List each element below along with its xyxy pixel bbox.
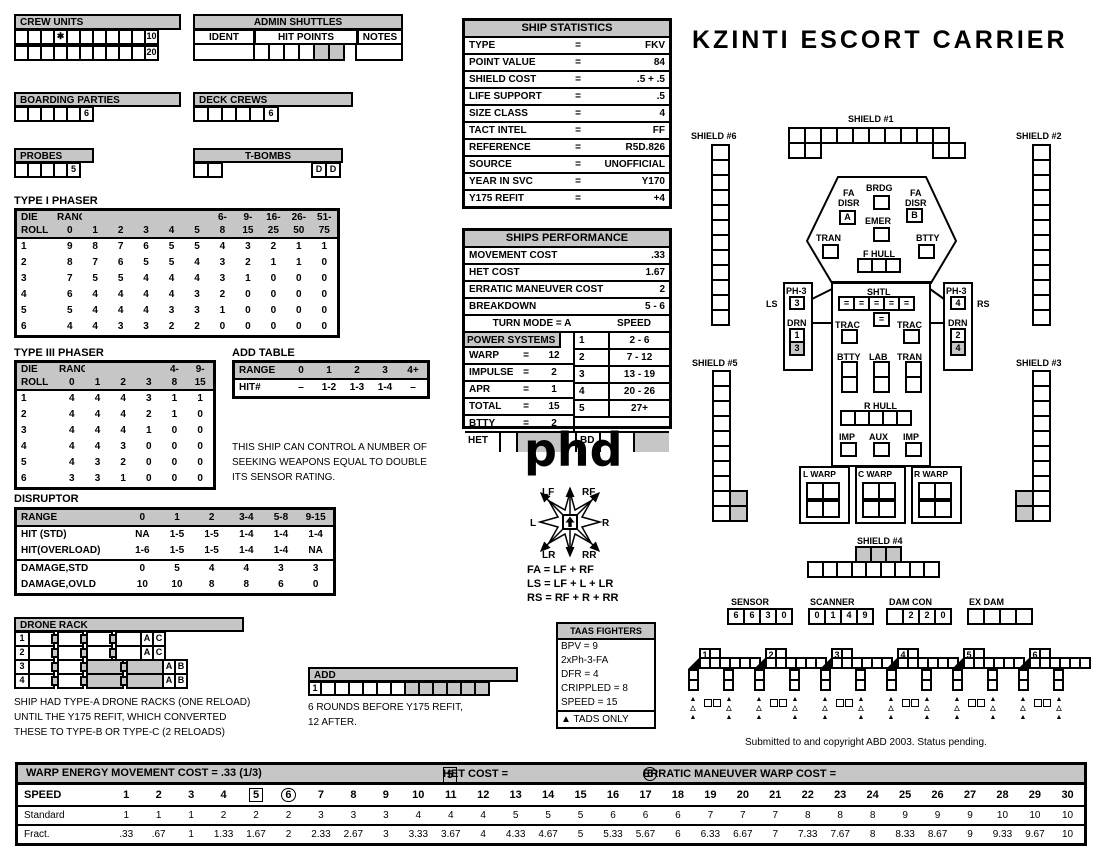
box-cell: 5 bbox=[66, 162, 81, 178]
aux-cell[interactable] bbox=[873, 442, 890, 457]
rose-label-lf: LF bbox=[542, 487, 554, 498]
ship-statistics-panel: SHIP STATISTICS TYPE=FKVPOINT VALUE=84SH… bbox=[462, 18, 672, 209]
box-cell bbox=[1018, 679, 1029, 691]
emer-label: EMER bbox=[865, 216, 891, 226]
box-cell bbox=[886, 679, 897, 691]
l-warp-label: L WARP bbox=[803, 469, 836, 479]
fighter-arrow-icons: ▲△▲ bbox=[856, 695, 866, 722]
box-cell bbox=[754, 679, 765, 691]
erratic-value: 2 bbox=[659, 282, 665, 297]
box-cell bbox=[841, 376, 858, 393]
het-cost-header-value: 5 bbox=[443, 767, 457, 784]
fighter-mini-box bbox=[1043, 699, 1051, 707]
disruptor-table: RANGE0123-45-89-15HIT (STD)NA1-51-51-41-… bbox=[14, 507, 336, 596]
fighter-wing-icon bbox=[1018, 658, 1029, 669]
box-cell: 4 bbox=[950, 341, 966, 356]
type1-phaser-table: DIERANGE6-9-16-26-51-ROLL012345815255075… bbox=[14, 208, 340, 338]
tads-triangle-icon: ▲ bbox=[561, 714, 571, 725]
shield1-label: SHIELD #1 bbox=[848, 114, 894, 124]
fighter-wing-icon bbox=[886, 658, 897, 669]
btty-mid-column[interactable] bbox=[841, 361, 858, 391]
box-cell: A bbox=[839, 210, 856, 225]
fighter-icon[interactable]: 3▲△▲▲△▲ bbox=[820, 648, 866, 732]
fighter-mini-box bbox=[836, 699, 844, 707]
trac-left-cell[interactable] bbox=[841, 329, 858, 344]
taas-title: TAAS FIGHTERS bbox=[558, 624, 654, 640]
add-strip-note: 6 ROUNDS BEFORE Y175 REFIT, 12 AFTER. bbox=[308, 700, 463, 730]
disr-b-box[interactable]: B bbox=[906, 208, 921, 223]
probes-header: PROBES bbox=[14, 148, 94, 163]
admin-shuttles-header: ADMIN SHUTTLES bbox=[193, 14, 403, 30]
box-cell bbox=[711, 309, 730, 326]
sensor-label: SENSOR bbox=[731, 597, 769, 607]
add-table-title: ADD TABLE bbox=[232, 347, 295, 359]
ships-performance-panel: SHIPS PERFORMANCE MOVEMENT COST.33 HET C… bbox=[462, 228, 672, 429]
fa-left-label: FA bbox=[843, 188, 855, 198]
admin-notes-cell[interactable] bbox=[355, 43, 403, 61]
warp-energy-cost-label: WARP ENERGY MOVEMENT COST = .33 (1/3) bbox=[26, 766, 262, 781]
box-cell bbox=[885, 258, 901, 273]
box-cell: 4 bbox=[950, 296, 966, 310]
box-cell: 6 bbox=[79, 106, 94, 122]
box-cell bbox=[952, 679, 963, 691]
fighter-icon[interactable]: 6▲△▲▲△▲ bbox=[1018, 648, 1064, 732]
drone-rack-rows[interactable]: 1AC2AC3AB4AB bbox=[14, 631, 186, 687]
deck-crews-row[interactable]: 6 bbox=[193, 106, 277, 122]
box-cell bbox=[1015, 505, 1034, 522]
tads-only-label: TADS ONLY bbox=[574, 714, 629, 725]
drone-rack-note: SHIP HAD TYPE-A DRONE RACKS (ONE RELOAD)… bbox=[14, 695, 250, 740]
fighter-mini-box bbox=[1034, 699, 1042, 707]
aux-label: AUX bbox=[869, 432, 888, 442]
emer-box[interactable] bbox=[873, 227, 888, 242]
drn-left-boxes[interactable]: 13 bbox=[789, 328, 805, 354]
disr-left-label: DISR bbox=[838, 198, 860, 208]
shield3-label: SHIELD #3 bbox=[1016, 358, 1062, 368]
rose-label-lr: LR bbox=[542, 550, 556, 561]
admin-ident-cell[interactable] bbox=[193, 43, 255, 61]
seeking-weapons-note: THIS SHIP CAN CONTROL A NUMBER OF SEEKIN… bbox=[232, 440, 427, 485]
box-cell bbox=[878, 500, 896, 518]
ph3-right-box[interactable]: 4 bbox=[950, 296, 964, 310]
speed-rows-col: 12 - 627 - 12313 - 19420 - 26527+ bbox=[575, 333, 669, 431]
fighter-wing-icon bbox=[820, 658, 831, 669]
het-box[interactable] bbox=[501, 433, 518, 452]
fighter-arrow-icons: ▲△▲ bbox=[688, 695, 698, 722]
ph3-right-label: PH-3 bbox=[946, 286, 967, 296]
dam-con-track[interactable]: 220 bbox=[886, 608, 950, 625]
taas-line-crippled: CRIPPLED = 8 bbox=[558, 682, 654, 696]
fighter-mini-box bbox=[713, 699, 721, 707]
type1-phaser-title: TYPE I PHASER bbox=[14, 195, 98, 207]
shtl-center-box[interactable]: = bbox=[873, 312, 888, 327]
ex-dam-label: EX DAM bbox=[969, 597, 1004, 607]
disr-right-label: DISR bbox=[905, 198, 927, 208]
ls-label: LS bbox=[766, 299, 778, 309]
copyright-note: Submitted to and copyright ABD 2003. Sta… bbox=[745, 737, 987, 748]
bd-gray-box bbox=[635, 433, 669, 452]
box-cell: 9 bbox=[856, 608, 874, 625]
btty-fwd-label: BTTY bbox=[916, 233, 940, 243]
rose-label-rr: RR bbox=[582, 550, 597, 561]
drone-rack-row[interactable]: 4AB bbox=[14, 673, 186, 689]
erratic-cost-row: ERRATIC MANEUVER COST2 bbox=[465, 282, 669, 299]
box-cell bbox=[729, 505, 748, 522]
r-warp-grid[interactable] bbox=[918, 482, 954, 518]
rose-label-rf: RF bbox=[582, 487, 595, 498]
box-cell: 3 bbox=[789, 296, 805, 310]
shield1-bottom-left[interactable] bbox=[788, 142, 820, 159]
fighter-row[interactable]: 1▲△▲▲△▲2▲△▲▲△▲3▲△▲▲△▲4▲△▲▲△▲5▲△▲▲△▲6▲△▲▲… bbox=[688, 648, 1084, 732]
fighter-wing-icon bbox=[952, 658, 963, 669]
speed-col-header: SPEED bbox=[599, 316, 669, 331]
box-cell bbox=[896, 410, 912, 426]
r-hull-boxes[interactable] bbox=[840, 410, 910, 426]
movement-cost-row: MOVEMENT COST.33 bbox=[465, 248, 669, 265]
imp-right-box[interactable] bbox=[905, 442, 920, 457]
box-cell: 20 bbox=[144, 45, 159, 61]
r-warp-label: R WARP bbox=[914, 469, 948, 479]
shtl-row-boxes[interactable]: ===== bbox=[838, 296, 913, 311]
ex-dam-track[interactable] bbox=[967, 608, 1031, 625]
fighter-arrow-icons: ▲△▲ bbox=[754, 695, 764, 722]
box-cell: = bbox=[898, 296, 915, 311]
dam-con-label: DAM CON bbox=[889, 597, 932, 607]
box-cell: = bbox=[873, 312, 890, 327]
shield6-label: SHIELD #6 bbox=[691, 131, 737, 141]
trac-right-cell[interactable] bbox=[903, 329, 920, 344]
box-cell bbox=[126, 673, 164, 689]
ships-performance-title: SHIPS PERFORMANCE bbox=[465, 231, 669, 248]
turn-mode-value: TURN MODE = A bbox=[465, 316, 599, 331]
fighter-mini-box bbox=[845, 699, 853, 707]
fighter-icon[interactable]: 5▲△▲▲△▲ bbox=[952, 648, 998, 732]
fighter-mini-box bbox=[704, 699, 712, 707]
sensor-track[interactable]: 6630 bbox=[727, 608, 791, 625]
taas-fighters-panel: TAAS FIGHTERS BPV = 9 2xPh-3-FA DFR = 4 … bbox=[556, 622, 656, 729]
power-systems-header: POWER SYSTEMS bbox=[465, 333, 561, 348]
shield5-gray-pair bbox=[729, 490, 748, 520]
fighter-arrow-icons: ▲△▲ bbox=[724, 695, 734, 722]
box-cell bbox=[1015, 608, 1033, 625]
box-cell bbox=[1079, 657, 1091, 669]
emer-cell[interactable] bbox=[873, 227, 890, 242]
tran-fwd-label: TRAN bbox=[816, 233, 841, 243]
taas-line-bpv: BPV = 9 bbox=[558, 640, 654, 654]
trac-left-box[interactable] bbox=[841, 329, 856, 344]
boarding-parties-row[interactable]: 6 bbox=[14, 106, 92, 122]
box-cell: 10 bbox=[144, 29, 159, 45]
add-strip-num: 1 bbox=[308, 681, 320, 696]
box-cell bbox=[804, 142, 822, 159]
taas-line-weapons: 2xPh-3-FA bbox=[558, 654, 654, 668]
box-cell bbox=[820, 679, 831, 691]
admin-hit-cells[interactable] bbox=[253, 43, 343, 61]
drn-left-label: DRN bbox=[787, 318, 807, 328]
add-table: RANGE01234+HIT#–1-21-31-4– bbox=[232, 360, 430, 399]
taas-line-speed: SPEED = 15 bbox=[558, 696, 654, 710]
fighter-icon[interactable]: 4▲△▲▲△▲ bbox=[886, 648, 932, 732]
box-cell bbox=[474, 681, 490, 696]
drn-right-label: DRN bbox=[948, 318, 968, 328]
shield2-column[interactable] bbox=[1032, 144, 1051, 324]
movement-cost-label: MOVEMENT COST bbox=[469, 248, 557, 263]
imp-left-cell[interactable] bbox=[840, 442, 857, 457]
c-warp-label: C WARP bbox=[858, 469, 892, 479]
movement-cost-value: .33 bbox=[651, 248, 665, 263]
speed-chart-header: WARP ENERGY MOVEMENT COST = .33 (1/3) HE… bbox=[18, 765, 1084, 785]
box-cell: 6 bbox=[263, 106, 279, 122]
box-cell bbox=[923, 561, 940, 578]
erratic-label: ERRATIC MANEUVER COST bbox=[469, 282, 603, 297]
t-bombs-header: T-BOMBS bbox=[193, 148, 343, 163]
box-cell bbox=[1053, 679, 1064, 691]
fighter-mini-box bbox=[968, 699, 976, 707]
box-cell bbox=[921, 679, 932, 691]
box-cell bbox=[878, 482, 896, 500]
fighter-mini-box bbox=[911, 699, 919, 707]
box-cell: 0 bbox=[775, 608, 793, 625]
add-strip-cells[interactable] bbox=[320, 681, 488, 696]
fighter-arrow-icons: ▲△▲ bbox=[952, 695, 962, 722]
ph3-left-box[interactable]: 3 bbox=[789, 296, 803, 310]
box-cell: 3 bbox=[789, 341, 805, 356]
imp-left-box[interactable] bbox=[840, 442, 855, 457]
fighter-icon[interactable]: 1▲△▲▲△▲ bbox=[688, 648, 734, 732]
fighter-mini-box bbox=[902, 699, 910, 707]
box-cell bbox=[987, 679, 998, 691]
box-cell bbox=[822, 500, 840, 518]
box-cell bbox=[1032, 505, 1051, 522]
shield2-label: SHIELD #2 bbox=[1016, 131, 1062, 141]
aux-box[interactable] bbox=[873, 442, 888, 457]
phd-logo: phd bbox=[524, 426, 623, 474]
breakdown-row: BREAKDOWN5 - 6 bbox=[465, 299, 669, 316]
tran-fwd-box[interactable] bbox=[822, 244, 837, 259]
box-cell bbox=[1032, 309, 1051, 326]
box-cell: D bbox=[325, 162, 341, 178]
imp-right-label: IMP bbox=[903, 432, 919, 442]
fighter-arrow-icons: ▲△▲ bbox=[922, 695, 932, 722]
box-cell bbox=[789, 679, 800, 691]
shield1-bottom-right[interactable] bbox=[932, 142, 964, 159]
box-cell bbox=[822, 482, 840, 500]
crew-units-row-1: ✱10 bbox=[14, 29, 157, 45]
brdg-label: BRDG bbox=[866, 183, 893, 193]
c-warp-grid[interactable] bbox=[862, 482, 898, 518]
breakdown-label: BREAKDOWN bbox=[469, 299, 536, 314]
erratic-header-value: 6 bbox=[643, 767, 657, 781]
shield3-gray-pair bbox=[1015, 490, 1034, 520]
btty-fwd-box[interactable] bbox=[918, 244, 933, 259]
box-cell bbox=[207, 162, 223, 178]
box-cell bbox=[934, 482, 952, 500]
disruptor-title: DISRUPTOR bbox=[14, 493, 79, 505]
breakdown-value: 5 - 6 bbox=[645, 299, 665, 314]
fighter-mini-box bbox=[779, 699, 787, 707]
box-cell bbox=[86, 673, 124, 689]
tran-mid-column[interactable] bbox=[905, 361, 922, 391]
add-strip-header: ADD bbox=[308, 667, 518, 682]
shield3-column[interactable] bbox=[1032, 370, 1051, 520]
box-cell bbox=[688, 679, 699, 691]
btty-fwd-cell[interactable] bbox=[918, 244, 935, 259]
box-cell bbox=[328, 43, 345, 61]
fa-right-label: FA bbox=[910, 188, 922, 198]
box-cell bbox=[855, 679, 866, 691]
crew-units-row-2: 20 bbox=[14, 45, 157, 61]
rose-label-r: R bbox=[602, 518, 610, 529]
brdg-cell[interactable] bbox=[873, 195, 890, 210]
fighter-mini-box bbox=[977, 699, 985, 707]
box-cell bbox=[723, 679, 734, 691]
boarding-parties-header: BOARDING PARTIES bbox=[14, 92, 181, 107]
shield4-bottom-row[interactable] bbox=[807, 561, 938, 578]
box-cell: B bbox=[906, 208, 923, 223]
shield6-column[interactable] bbox=[711, 144, 730, 324]
l-warp-grid[interactable] bbox=[806, 482, 842, 518]
ship-statistics-title: SHIP STATISTICS bbox=[465, 21, 669, 38]
type3-phaser-table: DIERANGE4-9-ROLL012381514443112444210344… bbox=[14, 360, 216, 490]
ssd-sheet: CREW UNITS ✱10 20 ADMIN SHUTTLES IDENT H… bbox=[0, 0, 1100, 850]
fighter-arrow-icons: ▲△▲ bbox=[886, 695, 896, 722]
firing-arc-rose: LF RF L R LR RR bbox=[526, 478, 614, 566]
power-systems-col: POWER SYSTEMS WARP=12IMPULSE=2APR=1TOTAL… bbox=[465, 333, 575, 431]
speed-chart: WARP ENERGY MOVEMENT COST = .33 (1/3) HE… bbox=[15, 762, 1087, 846]
drn-right-boxes[interactable]: 24 bbox=[950, 328, 966, 354]
imp-left-label: IMP bbox=[839, 432, 855, 442]
fighter-wing-icon bbox=[754, 658, 765, 669]
lab-column[interactable] bbox=[873, 361, 890, 391]
tran-fwd-cell[interactable] bbox=[822, 244, 839, 259]
rs-label: RS bbox=[977, 299, 990, 309]
page-title: KZINTI ESCORT CARRIER bbox=[692, 26, 1068, 55]
fighter-wing-icon bbox=[688, 658, 699, 669]
het-cost-row: HET COST1.67 bbox=[465, 265, 669, 282]
taas-line-dfr: DFR = 4 bbox=[558, 668, 654, 682]
box-cell bbox=[873, 376, 890, 393]
shield5-label: SHIELD #5 bbox=[692, 358, 738, 368]
fighter-icon[interactable]: 2▲△▲▲△▲ bbox=[754, 648, 800, 732]
het-cost-value: 1.67 bbox=[646, 265, 665, 280]
t-bombs-d-cells[interactable]: DD bbox=[311, 162, 339, 178]
power-rows-table: WARP=12IMPULSE=2APR=1TOTAL=15BTTY=2 bbox=[465, 348, 573, 431]
probes-row[interactable]: 5 bbox=[14, 162, 79, 178]
rose-label-l: L bbox=[530, 518, 536, 529]
ship-statistics-table: TYPE=FKVPOINT VALUE=84SHIELD COST=.5 + .… bbox=[465, 38, 669, 206]
deck-crews-header: DECK CREWS bbox=[193, 92, 353, 107]
fighter-arrow-icons: ▲△▲ bbox=[1018, 695, 1028, 722]
fighter-arrow-icons: ▲△▲ bbox=[790, 695, 800, 722]
taas-footer: ▲ TADS ONLY bbox=[558, 710, 654, 727]
fighter-arrow-icons: ▲△▲ bbox=[988, 695, 998, 722]
scanner-track[interactable]: 0149 bbox=[808, 608, 872, 625]
crew-units-header: CREW UNITS bbox=[14, 14, 181, 30]
het-cost-label: HET COST bbox=[469, 265, 520, 280]
box-cell bbox=[905, 376, 922, 393]
fighter-arrow-icons: ▲△▲ bbox=[1054, 695, 1064, 722]
scanner-label: SCANNER bbox=[810, 597, 855, 607]
f-hull-boxes[interactable] bbox=[857, 258, 899, 273]
ph3-left-label: PH-3 bbox=[786, 286, 807, 296]
erratic-header-text: ERRATIC MANEUVER WARP COST = bbox=[643, 767, 836, 782]
box-cell: B bbox=[174, 673, 188, 689]
t-bombs-left-cells[interactable] bbox=[193, 162, 221, 178]
power-speed-split: POWER SYSTEMS WARP=12IMPULSE=2APR=1TOTAL… bbox=[465, 333, 669, 431]
drone-rack-header: DRONE RACK bbox=[14, 617, 244, 632]
shield4-label: SHIELD #4 bbox=[857, 536, 903, 546]
box-cell bbox=[948, 142, 966, 159]
box-cell: 0 bbox=[934, 608, 952, 625]
arc-formulas: FA = LF + RF LS = LF + L + LR RS = RF + … bbox=[527, 563, 618, 605]
fighter-mini-box bbox=[770, 699, 778, 707]
turn-mode-row: TURN MODE = ASPEED bbox=[465, 316, 669, 333]
box-cell bbox=[934, 500, 952, 518]
disr-a-box[interactable]: A bbox=[839, 210, 854, 225]
speed-chart-table: SPEED12345678910111213141516171819202122… bbox=[18, 785, 1084, 843]
brdg-box[interactable] bbox=[873, 195, 888, 210]
fighter-arrow-icons: ▲△▲ bbox=[820, 695, 830, 722]
trac-right-box[interactable] bbox=[903, 329, 918, 344]
type3-phaser-title: TYPE III PHASER bbox=[14, 347, 104, 359]
imp-right-cell[interactable] bbox=[905, 442, 922, 457]
het-label: HET bbox=[465, 433, 501, 452]
